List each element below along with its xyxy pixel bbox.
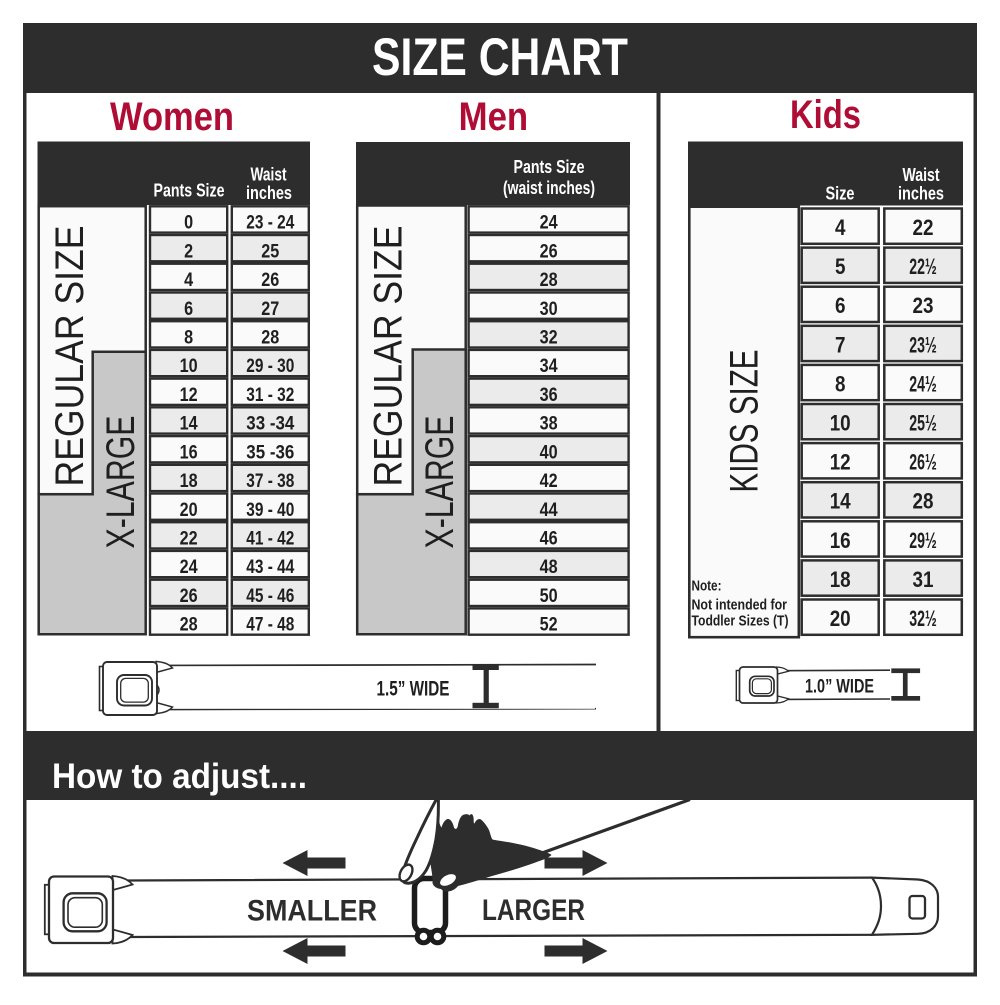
svg-text:25½: 25½ (909, 411, 937, 436)
svg-text:28: 28 (261, 328, 279, 349)
svg-text:20: 20 (830, 606, 851, 631)
svg-text:32½: 32½ (909, 606, 937, 631)
svg-text:37 - 38: 37 - 38 (246, 471, 294, 492)
svg-text:How to adjust....: How to adjust.... (52, 757, 307, 796)
svg-text:16: 16 (180, 442, 198, 463)
svg-text:24: 24 (540, 213, 558, 234)
svg-text:52: 52 (540, 615, 558, 636)
svg-text:(waist inches): (waist inches) (503, 177, 595, 198)
svg-text:24½: 24½ (909, 371, 937, 396)
svg-text:LARGER: LARGER (482, 894, 585, 927)
svg-text:26: 26 (180, 586, 198, 607)
svg-text:inches: inches (246, 182, 292, 203)
svg-text:31 - 32: 31 - 32 (246, 385, 294, 406)
svg-text:Toddler Sizes (T): Toddler Sizes (T) (692, 613, 789, 630)
svg-text:1.5” WIDE: 1.5” WIDE (377, 678, 450, 701)
svg-text:39 - 40: 39 - 40 (246, 500, 294, 521)
svg-text:Pants Size: Pants Size (514, 156, 585, 177)
svg-text:4: 4 (835, 215, 846, 240)
svg-text:22: 22 (180, 529, 198, 550)
svg-text:X-LARGE: X-LARGE (418, 416, 462, 549)
svg-text:2: 2 (184, 241, 193, 262)
svg-text:26½: 26½ (909, 450, 937, 475)
svg-text:45 - 46: 45 - 46 (246, 586, 294, 607)
svg-text:28: 28 (180, 615, 198, 636)
svg-text:28: 28 (540, 270, 558, 291)
svg-text:Kids: Kids (790, 93, 861, 137)
svg-text:23 - 24: 23 - 24 (246, 213, 294, 234)
svg-text:42: 42 (540, 471, 558, 492)
svg-text:18: 18 (180, 471, 198, 492)
svg-text:32: 32 (540, 328, 558, 349)
svg-text:1.0” WIDE: 1.0” WIDE (805, 675, 874, 697)
svg-text:40: 40 (540, 442, 558, 463)
svg-text:8: 8 (184, 328, 193, 349)
svg-text:43 - 44: 43 - 44 (246, 557, 294, 578)
svg-text:47 - 48: 47 - 48 (246, 615, 294, 636)
svg-text:28: 28 (913, 489, 934, 514)
svg-text:SIZE CHART: SIZE CHART (372, 28, 628, 87)
svg-text:48: 48 (540, 557, 558, 578)
svg-text:X-LARGE: X-LARGE (99, 416, 143, 549)
svg-text:Women: Women (110, 95, 234, 139)
svg-text:24: 24 (180, 557, 198, 578)
svg-text:14: 14 (830, 489, 852, 514)
svg-text:22½: 22½ (909, 254, 937, 279)
svg-text:10: 10 (180, 356, 198, 377)
svg-text:Not intended for: Not intended for (692, 597, 788, 614)
svg-text:27: 27 (261, 299, 279, 320)
svg-text:41 - 42: 41 - 42 (246, 529, 294, 550)
svg-text:25: 25 (261, 241, 279, 262)
svg-text:5: 5 (835, 254, 846, 279)
svg-text:29 - 30: 29 - 30 (246, 356, 294, 377)
svg-text:KIDS SIZE: KIDS SIZE (723, 350, 767, 493)
svg-text:4: 4 (184, 270, 193, 291)
svg-text:Size: Size (826, 183, 855, 204)
svg-text:23: 23 (913, 293, 934, 318)
svg-text:50: 50 (540, 586, 558, 607)
svg-text:Pants Size: Pants Size (154, 180, 225, 201)
svg-text:35 -36: 35 -36 (246, 442, 294, 463)
svg-text:6: 6 (184, 299, 193, 320)
svg-text:26: 26 (261, 270, 279, 291)
svg-text:33 -34: 33 -34 (246, 414, 294, 435)
svg-text:16: 16 (830, 528, 851, 553)
svg-text:8: 8 (835, 371, 846, 396)
svg-text:23½: 23½ (909, 332, 937, 357)
svg-text:12: 12 (830, 450, 851, 475)
svg-text:31: 31 (913, 567, 934, 592)
svg-text:38: 38 (540, 414, 558, 435)
svg-text:SMALLER: SMALLER (247, 895, 377, 928)
svg-text:36: 36 (540, 385, 558, 406)
svg-text:20: 20 (180, 500, 198, 521)
svg-text:30: 30 (540, 299, 558, 320)
svg-text:REGULAR SIZE: REGULAR SIZE (367, 226, 411, 487)
svg-text:44: 44 (540, 500, 558, 521)
svg-text:10: 10 (830, 411, 851, 436)
svg-text:12: 12 (180, 385, 198, 406)
svg-text:34: 34 (540, 356, 558, 377)
svg-text:29½: 29½ (909, 528, 937, 553)
svg-text:Note:: Note: (692, 578, 722, 595)
svg-text:Men: Men (459, 95, 529, 139)
svg-text:18: 18 (830, 567, 851, 592)
svg-text:22: 22 (913, 215, 934, 240)
svg-text:7: 7 (835, 332, 846, 357)
svg-text:26: 26 (540, 241, 558, 262)
svg-text:46: 46 (540, 529, 558, 550)
svg-text:0: 0 (184, 213, 193, 234)
svg-text:REGULAR SIZE: REGULAR SIZE (48, 226, 92, 487)
svg-text:6: 6 (835, 293, 846, 318)
svg-text:14: 14 (180, 414, 198, 435)
svg-text:inches: inches (898, 183, 944, 204)
